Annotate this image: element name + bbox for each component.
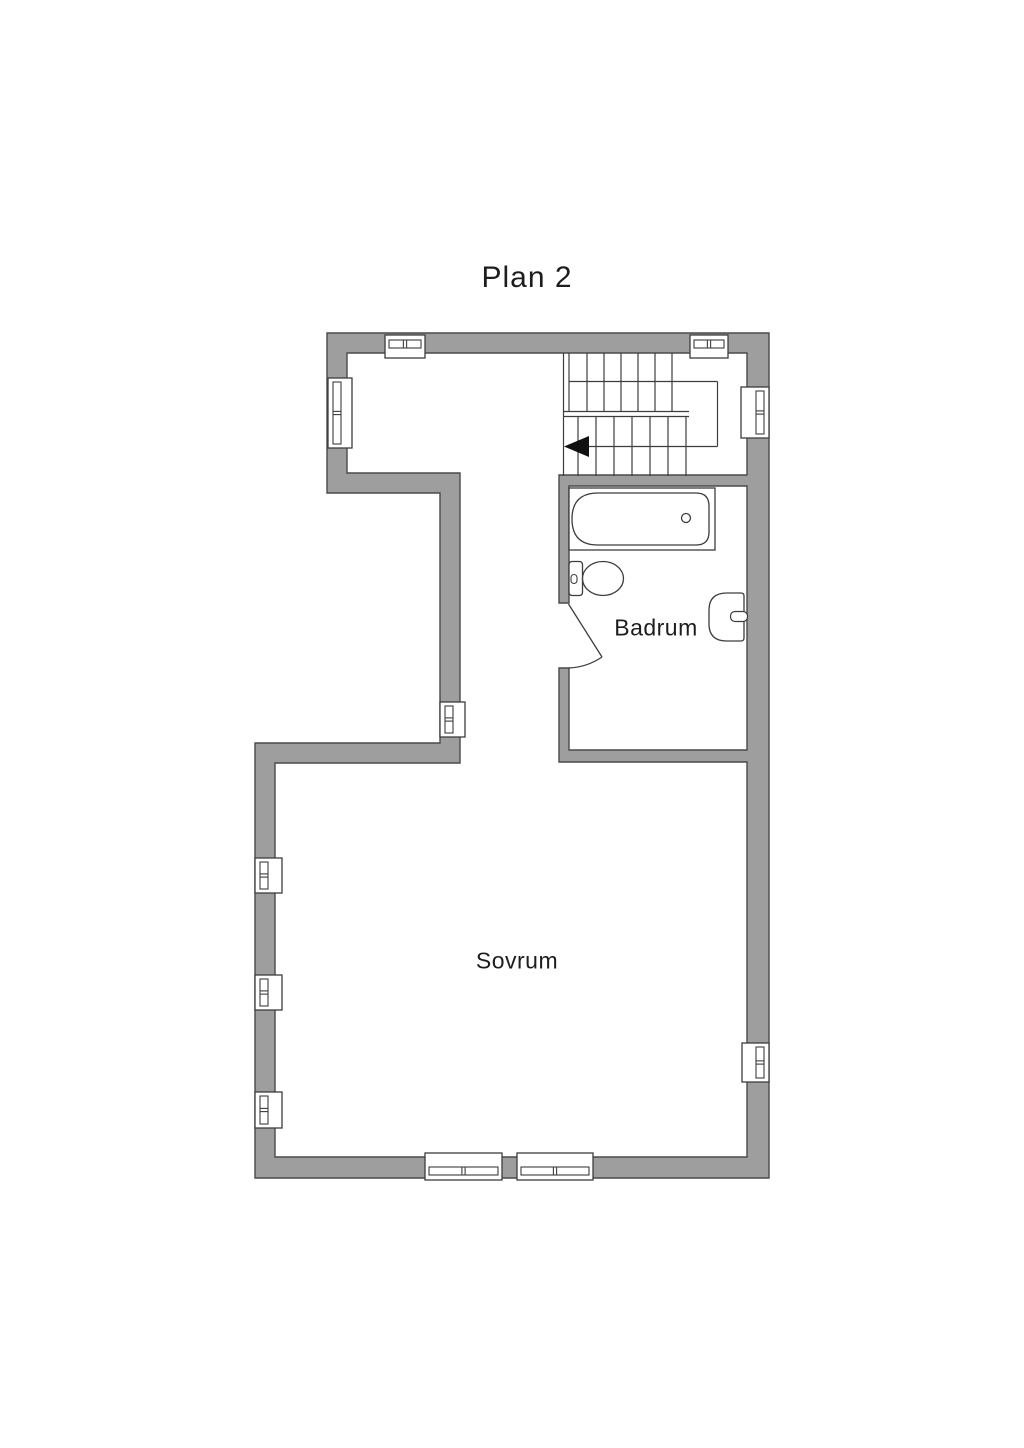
window-glazing bbox=[389, 340, 421, 348]
window-glazing bbox=[521, 1167, 589, 1175]
stair-direction-arrow bbox=[564, 436, 589, 457]
bathtub bbox=[569, 488, 715, 550]
window-hall-west bbox=[440, 702, 465, 737]
window-left-upper bbox=[328, 378, 352, 448]
sink bbox=[709, 593, 748, 641]
window-right-lower bbox=[742, 1043, 769, 1082]
window-glazing bbox=[429, 1167, 498, 1175]
toilet bbox=[569, 562, 624, 596]
window-frame bbox=[741, 387, 769, 438]
window-top-left bbox=[385, 335, 425, 358]
walls-layer bbox=[255, 333, 769, 1178]
floorplan-svg bbox=[0, 0, 1024, 1448]
wall-path bbox=[255, 333, 769, 1178]
sink-faucet bbox=[731, 612, 748, 622]
window-glazing bbox=[756, 391, 764, 434]
window-right-upper bbox=[741, 387, 769, 438]
toilet-flush-button bbox=[571, 575, 577, 584]
door-leaf bbox=[569, 604, 603, 657]
bathtub-drain bbox=[682, 514, 691, 523]
bathroom-door bbox=[569, 604, 603, 668]
window-left-mid-2 bbox=[255, 975, 282, 1010]
window-left-mid-1 bbox=[255, 858, 282, 893]
window-left-mid-3 bbox=[255, 1092, 282, 1128]
stairs-layer bbox=[564, 353, 718, 476]
window-bottom-left bbox=[425, 1153, 502, 1180]
toilet-bowl bbox=[583, 562, 624, 596]
window-glazing bbox=[445, 706, 453, 733]
room-label-sovrum: Sovrum bbox=[476, 948, 558, 975]
window-glazing bbox=[694, 340, 724, 348]
window-glazing bbox=[260, 979, 268, 1006]
window-top-right bbox=[690, 335, 728, 358]
floorplan-page: Plan 2 Badrum Sovrum bbox=[0, 0, 1024, 1448]
window-glazing bbox=[260, 862, 268, 889]
window-bottom-right bbox=[517, 1153, 593, 1180]
window-glazing bbox=[756, 1047, 764, 1078]
door-swing-arc bbox=[569, 657, 603, 668]
room-label-badrum: Badrum bbox=[614, 615, 698, 642]
window-glazing bbox=[333, 382, 341, 444]
window-glazing bbox=[260, 1096, 268, 1124]
